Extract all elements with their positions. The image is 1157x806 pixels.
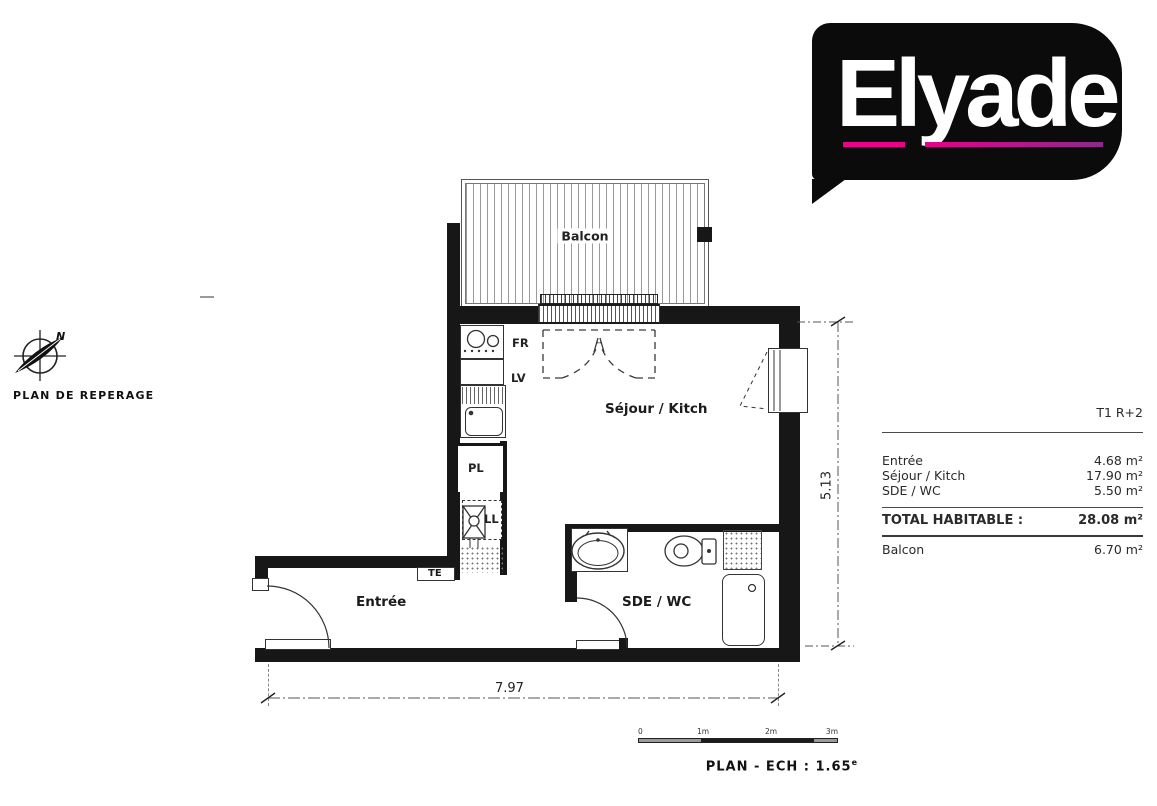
compass-icon: N <box>14 330 66 381</box>
entry-door-jamb <box>252 578 269 591</box>
logo-underline-left <box>843 142 905 147</box>
balcony-pillar <box>697 227 712 242</box>
sink-drainer <box>462 387 504 404</box>
closet-label: PL <box>468 461 484 475</box>
annex-value: 6.70 m² <box>1094 543 1143 557</box>
balcony-decking <box>465 183 705 304</box>
table-annex-row: Balcon 6.70 m² <box>882 543 1143 557</box>
scale-bar-strip <box>638 738 838 743</box>
plan-scale-caption: PLAN - ECH : 1.65e <box>678 758 858 774</box>
scale-bar: 0 1m 2m 3m <box>638 727 838 747</box>
bath-label: SDE / WC <box>622 594 691 610</box>
wall-bottom <box>255 648 800 662</box>
dim-extension-left <box>268 664 269 706</box>
kitchen-floor-hatch <box>460 546 503 573</box>
compass-north-letter: N <box>56 330 65 343</box>
fridge-label: FR <box>512 336 529 350</box>
table-rule-2 <box>882 507 1143 508</box>
row-value: 5.50 m² <box>1094 484 1143 498</box>
washbasin-counter <box>571 528 628 572</box>
scan-artifact <box>200 296 214 298</box>
wall-left <box>447 223 460 580</box>
washer-label: LL <box>484 512 499 526</box>
table-rule-1 <box>882 432 1143 433</box>
total-value: 28.08 m² <box>1078 514 1143 528</box>
shower-tray <box>722 574 765 646</box>
dim-extension-right <box>778 664 779 706</box>
sink-basin <box>465 407 503 436</box>
sliding-bay-window <box>538 304 660 324</box>
row-label: SDE / WC <box>882 484 941 498</box>
total-label: TOTAL HABITABLE : <box>882 514 1023 528</box>
scale-tick-2m: 2m <box>765 727 777 736</box>
scale-seg-light <box>639 739 701 742</box>
logo-underline-right <box>925 142 1103 147</box>
dishwasher-label: LV <box>511 371 526 385</box>
bay-opening-dashes <box>543 330 655 378</box>
bath-door-leaf <box>576 640 625 650</box>
balcony-rail <box>540 294 658 304</box>
row-label: Séjour / Kitch <box>882 469 965 483</box>
entry-label: Entrée <box>356 594 406 610</box>
bath-door-stop <box>619 638 628 650</box>
elyade-logo: Elyade <box>812 23 1122 180</box>
annex-label: Balcon <box>882 543 924 557</box>
dimension-height: 5.13 <box>820 464 835 508</box>
row-label: Entrée <box>882 454 923 468</box>
table-row: SDE / WC 5.50 m² <box>882 484 1143 498</box>
plan-scale-caption-sup: e <box>852 758 858 767</box>
unit-type: T1 R+2 <box>1096 405 1143 420</box>
table-rule-3 <box>882 535 1143 537</box>
plan-scale-caption-text: PLAN - ECH : 1.65 <box>706 759 852 774</box>
kitchen-counter-box <box>460 359 504 385</box>
floorplan-page: Balcon FR LV PL LL TE Séjour / Kitch Ent… <box>0 0 1157 806</box>
elyade-logo-text: Elyade <box>836 15 1116 172</box>
balcony-area: Balcon <box>461 179 709 308</box>
balcony-label: Balcon <box>557 228 612 243</box>
locator-caption: PLAN DE REPERAGE <box>13 389 154 402</box>
scale-seg-dark <box>701 739 814 742</box>
entry-door-leaf <box>265 639 331 650</box>
living-label: Séjour / Kitch <box>605 401 708 417</box>
logo-speech-tail <box>812 179 846 204</box>
scale-tick-0: 0 <box>638 727 643 736</box>
table-row: Séjour / Kitch 17.90 m² <box>882 469 1143 483</box>
row-value: 17.90 m² <box>1086 469 1143 483</box>
electrical-panel-label: TE <box>428 568 442 579</box>
row-value: 4.68 m² <box>1094 454 1143 468</box>
scale-tick-3m: 3m <box>826 727 838 736</box>
dimension-width: 7.97 <box>495 681 524 696</box>
kitchen-cooktop-box <box>460 325 504 359</box>
kitchen-sink-box <box>460 385 506 438</box>
wall-top-left <box>447 306 540 324</box>
area-table: T1 R+2 Entrée 4.68 m² Séjour / Kitch 17.… <box>882 399 1143 564</box>
scale-seg-light-end <box>814 739 837 742</box>
table-row: Entrée 4.68 m² <box>882 454 1143 468</box>
scale-tick-1m: 1m <box>697 727 709 736</box>
right-wall-window <box>768 348 808 413</box>
bath-tiled-hatch <box>723 530 762 570</box>
toilet-icon <box>665 536 716 566</box>
table-total-row: TOTAL HABITABLE : 28.08 m² <box>882 514 1143 528</box>
